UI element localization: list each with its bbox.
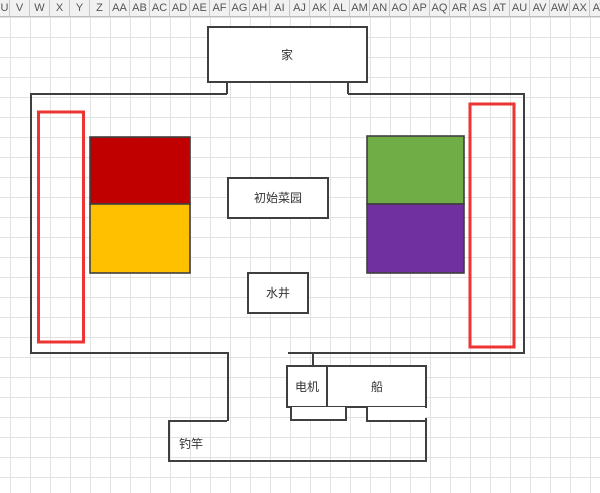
home-label: 家 [281,47,293,62]
red-fill-rect[interactable] [90,137,190,204]
orange-fill-rect[interactable] [90,204,190,273]
left-red-outline-rect[interactable] [39,112,84,342]
dock-tab-left-fill [292,407,345,420]
rod-box[interactable] [169,418,426,461]
green-fill-rect[interactable] [367,136,464,204]
boat-label: 船 [371,380,383,394]
map-drawing: 家 初始菜园 水井 电机 船 钓竿 [0,0,600,493]
purple-fill-rect[interactable] [367,204,464,273]
dock-tab-right-fill [368,407,425,420]
garden-label: 初始菜园 [254,191,302,205]
spreadsheet-canvas: UVWXYZAAABACADAEAFAGAHAIAJAKALAMANAOAPAQ… [0,0,600,493]
well-label: 水井 [266,286,290,300]
right-red-outline-rect[interactable] [470,104,514,347]
rod-label: 钓竿 [179,436,203,451]
motor-label: 电机 [295,380,319,394]
